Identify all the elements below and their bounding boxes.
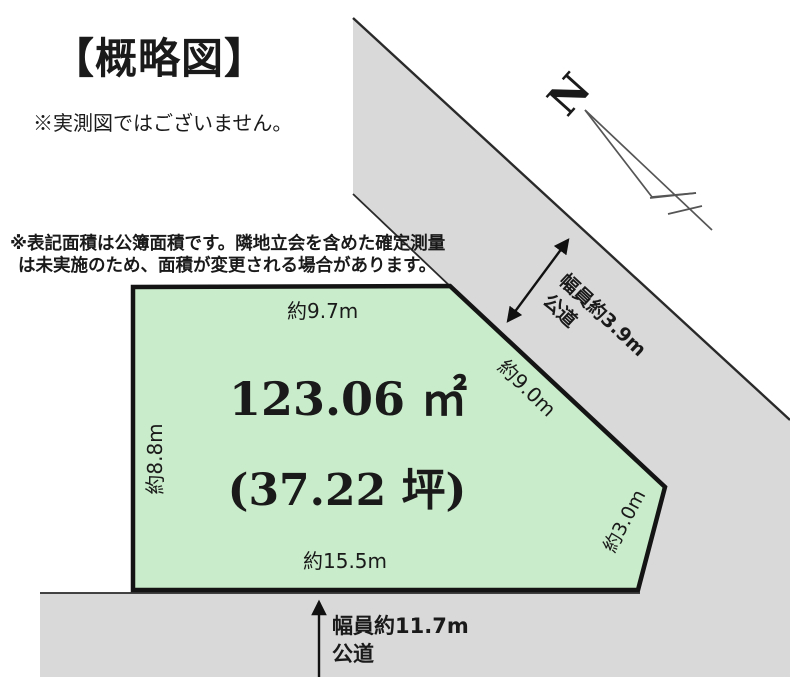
- land-plot-schematic: N 【概略図】 ※実測図ではございません。 ※表記面積は公簿面積です。隣地立会を…: [0, 0, 790, 700]
- dimension-top: 約9.7m: [287, 299, 358, 323]
- area-sqm-label: 123.06 ㎡: [229, 372, 467, 426]
- dimension-left: 約8.8m: [143, 423, 167, 494]
- south-road-type-label: 公道: [332, 642, 374, 666]
- north-compass: N: [538, 64, 712, 230]
- area-note-line2: は未実施のため、面積が変更される場合があります。: [18, 255, 436, 276]
- diagram-canvas: N 【概略図】 ※実測図ではございません。 ※表記面積は公簿面積です。隣地立会を…: [0, 0, 790, 700]
- compass-needle: [585, 110, 712, 230]
- diagram-title: 【概略図】: [52, 34, 267, 83]
- area-tsubo-label: (37.22 坪): [228, 465, 467, 516]
- dimension-bottom: 約15.5m: [303, 549, 387, 573]
- survey-disclaimer: ※実測図ではございません。: [33, 111, 292, 135]
- area-note-line1: ※表記面積は公簿面積です。隣地立会を含めた確定測量: [10, 233, 446, 254]
- south-road-width-label: 幅員約11.7m: [332, 614, 469, 638]
